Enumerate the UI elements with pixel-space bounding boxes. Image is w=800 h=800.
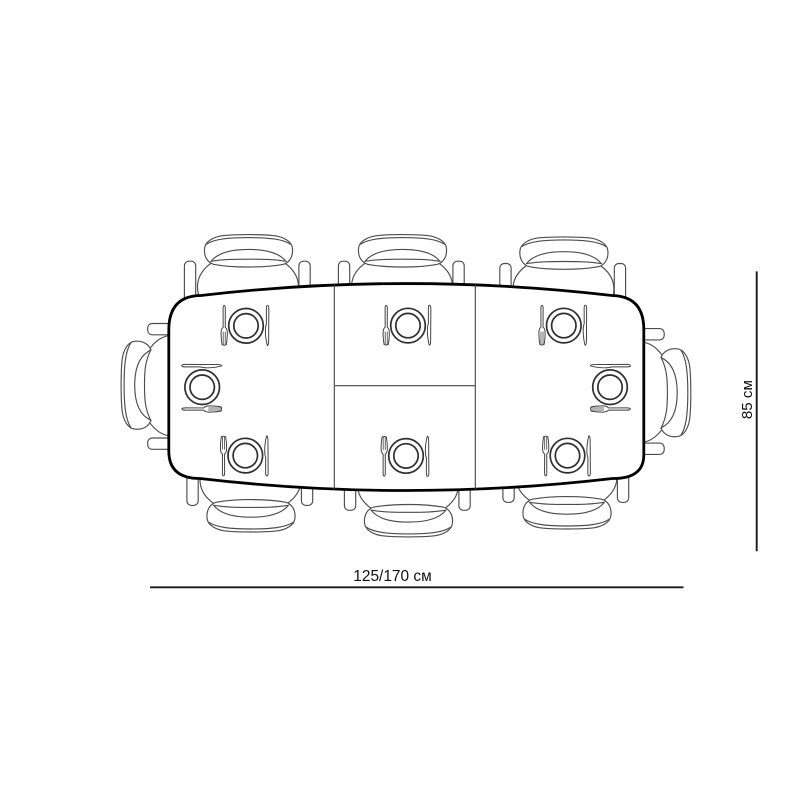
svg-text:85 см: 85 см (739, 380, 756, 419)
svg-text:125/170 см: 125/170 см (353, 568, 431, 585)
